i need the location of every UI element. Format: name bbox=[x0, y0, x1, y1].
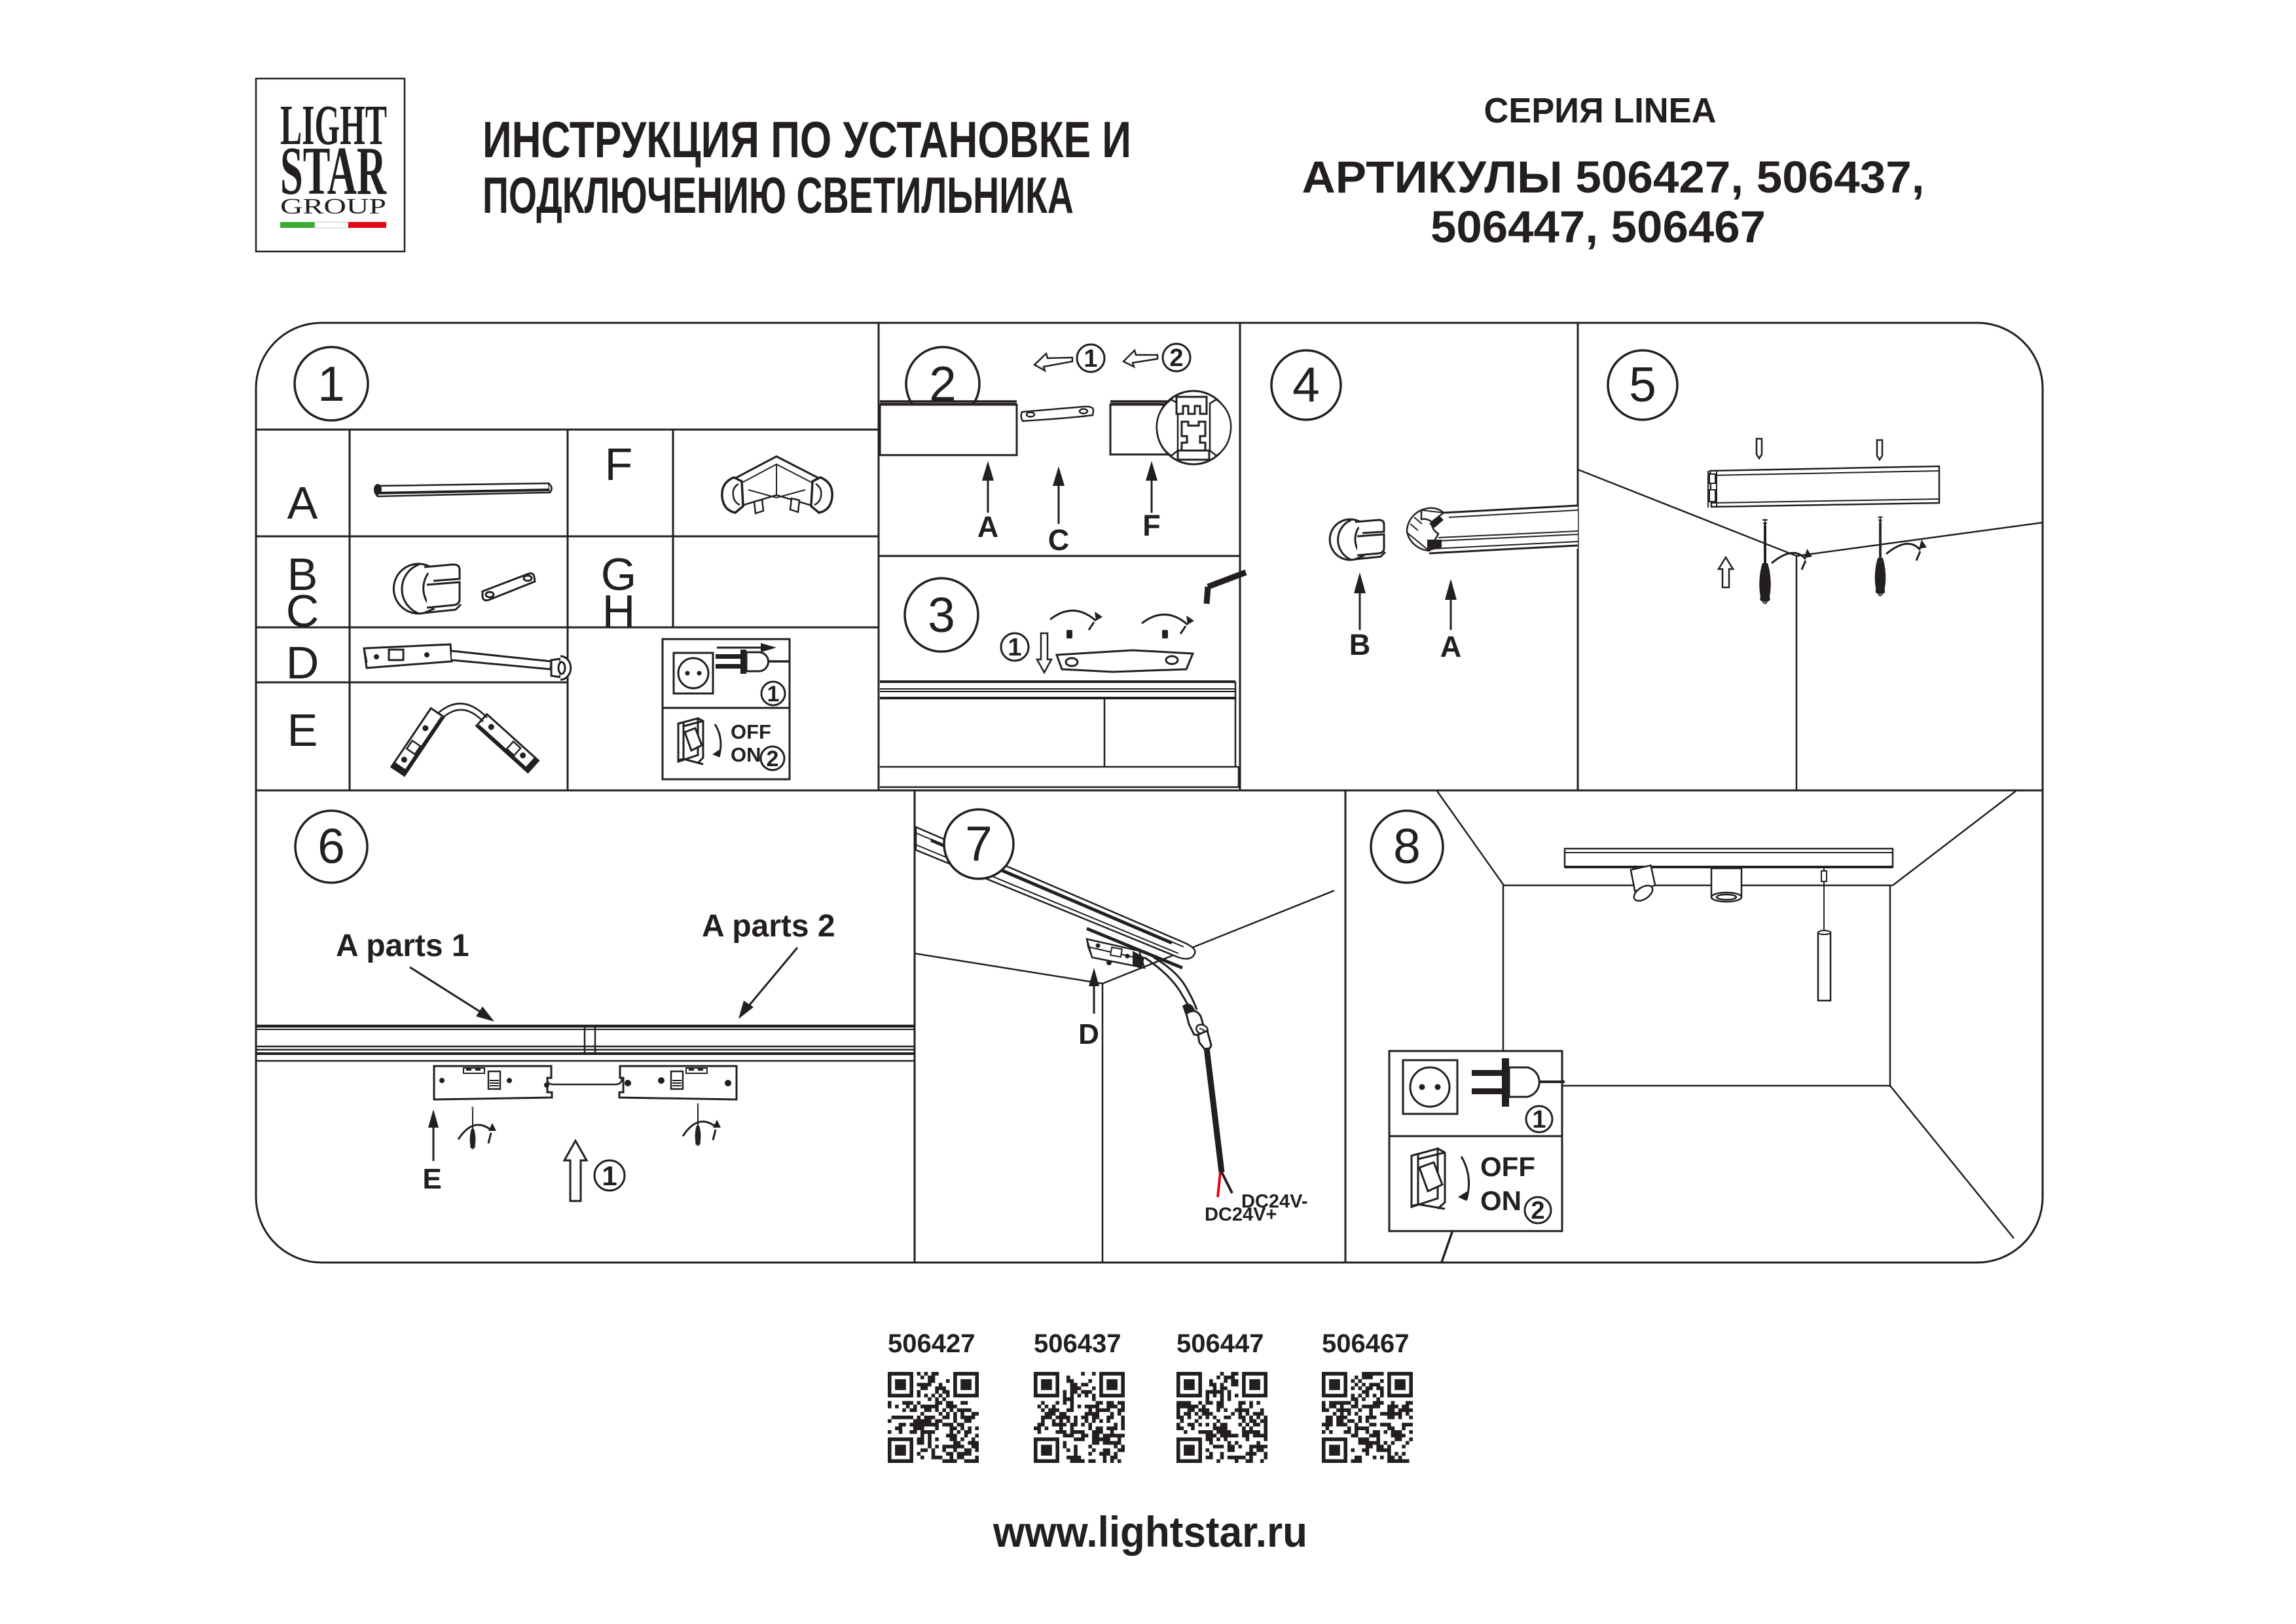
svg-text:1: 1 bbox=[1084, 345, 1097, 373]
svg-text:D: D bbox=[286, 637, 319, 688]
svg-text:GROUP: GROUP bbox=[280, 194, 386, 219]
svg-text:8: 8 bbox=[1393, 819, 1421, 874]
svg-text:СЕРИЯ LINEA: СЕРИЯ LINEA bbox=[1484, 91, 1717, 130]
svg-text:A: A bbox=[287, 477, 318, 528]
svg-text:A parts 2: A parts 2 bbox=[702, 909, 835, 944]
svg-text:506447: 506447 bbox=[1176, 1329, 1264, 1358]
svg-text:6: 6 bbox=[318, 819, 345, 874]
svg-text:1: 1 bbox=[602, 1160, 617, 1191]
svg-text:ПОДКЛЮЧЕНИЮ СВЕТИЛЬНИКА: ПОДКЛЮЧЕНИЮ СВЕТИЛЬНИКА bbox=[483, 166, 1074, 224]
svg-text:D: D bbox=[1078, 1018, 1099, 1050]
svg-text:2: 2 bbox=[1169, 344, 1183, 372]
svg-text:1: 1 bbox=[318, 356, 345, 411]
svg-text:ИНСТРУКЦИЯ ПО УСТАНОВКЕ И: ИНСТРУКЦИЯ ПО УСТАНОВКЕ И bbox=[483, 111, 1131, 168]
svg-text:C: C bbox=[1048, 523, 1070, 557]
svg-text:506447, 506467: 506447, 506467 bbox=[1430, 202, 1766, 252]
svg-text:506467: 506467 bbox=[1322, 1329, 1409, 1358]
svg-text:E: E bbox=[422, 1163, 441, 1195]
svg-text:1: 1 bbox=[1008, 634, 1021, 661]
svg-text:2: 2 bbox=[1531, 1197, 1544, 1225]
svg-text:C: C bbox=[286, 585, 319, 637]
svg-text:7: 7 bbox=[965, 816, 993, 871]
svg-text:5: 5 bbox=[1629, 357, 1656, 412]
svg-text:ON: ON bbox=[731, 743, 761, 766]
svg-text:506437: 506437 bbox=[1034, 1329, 1121, 1358]
svg-text:506427: 506427 bbox=[888, 1329, 975, 1358]
svg-text:2: 2 bbox=[767, 747, 779, 771]
svg-text:4: 4 bbox=[1292, 357, 1320, 412]
svg-text:A: A bbox=[1440, 630, 1462, 663]
svg-text:F: F bbox=[1142, 509, 1161, 542]
svg-text:1: 1 bbox=[767, 682, 780, 707]
svg-text:OFF: OFF bbox=[1480, 1151, 1535, 1182]
svg-text:F: F bbox=[605, 439, 633, 490]
svg-text:DC24V+: DC24V+ bbox=[1205, 1204, 1277, 1225]
svg-text:OFF: OFF bbox=[731, 720, 771, 743]
svg-text:3: 3 bbox=[928, 587, 955, 642]
svg-text:1: 1 bbox=[1532, 1106, 1546, 1134]
svg-text:E: E bbox=[287, 705, 318, 756]
svg-text:B: B bbox=[1349, 628, 1371, 661]
svg-text:H: H bbox=[602, 585, 636, 637]
svg-text:A parts 1: A parts 1 bbox=[336, 929, 469, 963]
svg-text:A: A bbox=[977, 510, 999, 544]
svg-text:www.lightstar.ru: www.lightstar.ru bbox=[993, 1507, 1307, 1556]
svg-text:АРТИКУЛЫ 506427, 506437,: АРТИКУЛЫ 506427, 506437, bbox=[1302, 152, 1925, 202]
svg-text:ON: ON bbox=[1480, 1185, 1522, 1216]
